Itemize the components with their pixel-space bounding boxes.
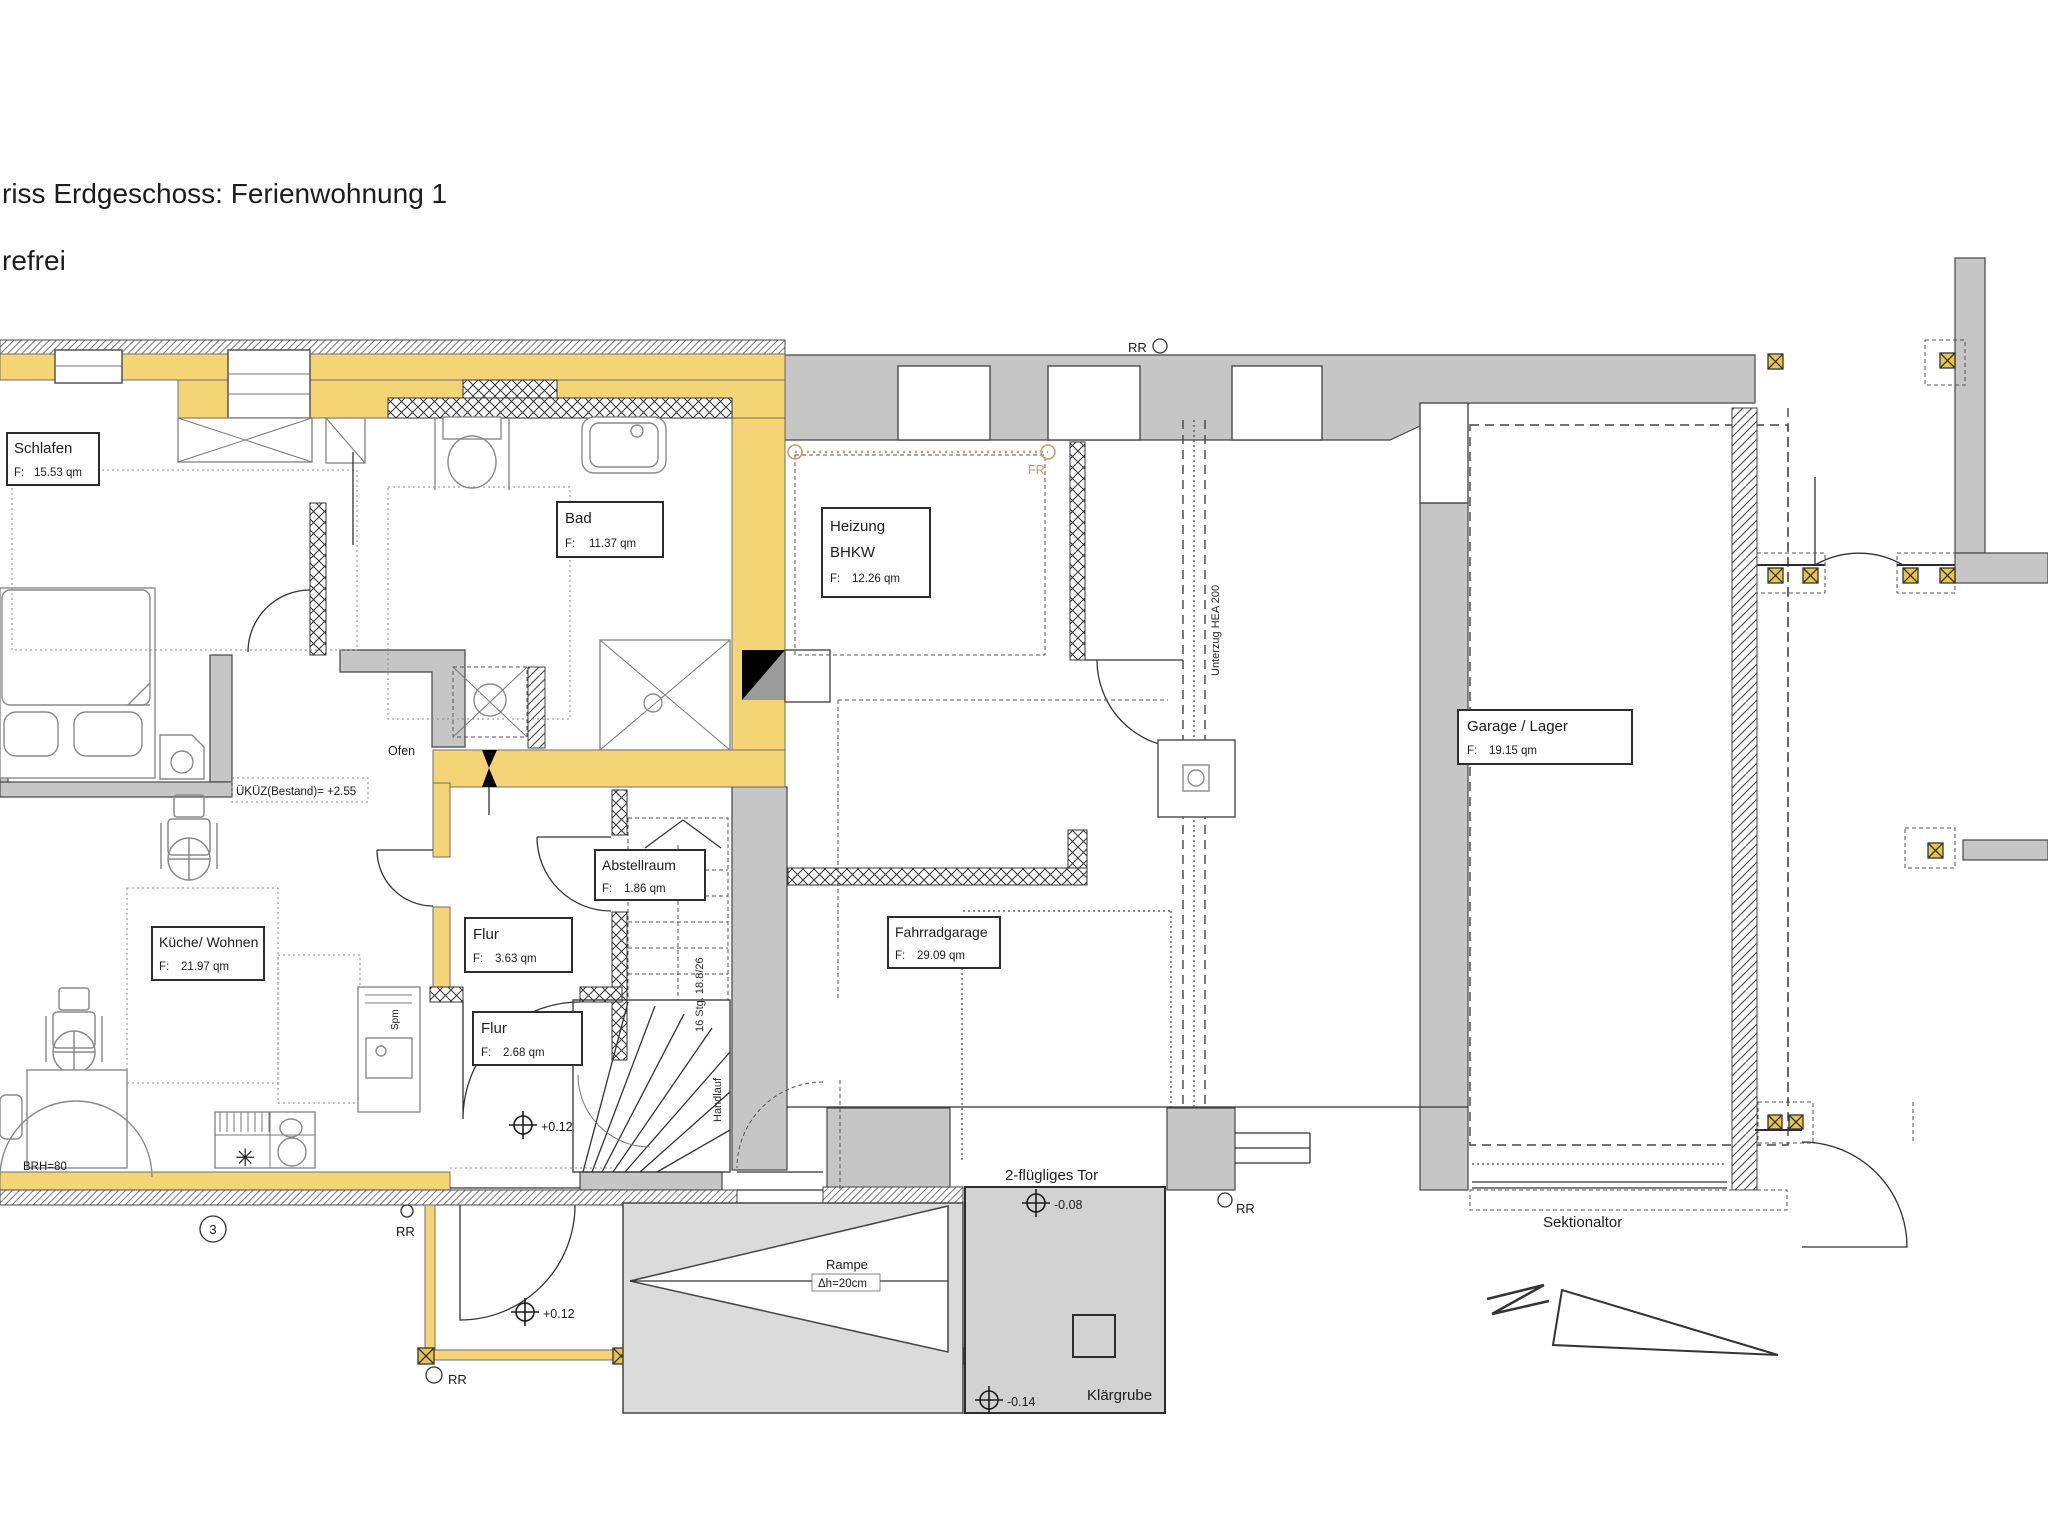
page-title: riss Erdgeschoss: Ferienwohnung 1 (2, 178, 447, 209)
room-name: Abstellraum (602, 857, 676, 873)
floorplan-drawing: riss Erdgeschoss: Ferienwohnung 1 refrei (0, 0, 2048, 1538)
room-label-fahrradgarage: Fahrradgarage F: 29.09 qm (888, 917, 1000, 968)
nightstand (160, 735, 204, 779)
unterzug-label: Unterzug HEA 200 (1210, 585, 1222, 676)
north-arrow-n-glyph (1487, 1285, 1549, 1314)
room-area: 3.63 qm (495, 953, 537, 965)
shower (600, 640, 730, 750)
room-name: Garage / Lager (1467, 718, 1568, 735)
ramp: Rampe Δh=20cm (623, 1203, 963, 1413)
dishwasher-label: Spm (390, 1009, 401, 1030)
stair-count-label: 16 Stg. 18.8/26 (694, 957, 706, 1032)
wheelchair-icon (161, 795, 217, 880)
area-prefix: F: (1467, 745, 1477, 757)
tor-label: 2-flügliges Tor (1005, 1167, 1098, 1184)
area-prefix: F: (473, 953, 483, 965)
area-prefix: F: (481, 1047, 491, 1059)
room-area: 15.53 qm (34, 467, 82, 479)
level-value: -0.08 (1054, 1198, 1083, 1212)
room-label-garage: Garage / Lager F: 19.15 qm (1458, 710, 1632, 764)
ramp-label: Rampe (826, 1257, 868, 1272)
kitchen-counter: ✳ Spm (215, 987, 420, 1172)
level-value: +0.12 (541, 1120, 573, 1134)
room-name-2: BHKW (830, 544, 876, 561)
area-prefix: F: (159, 961, 169, 973)
area-prefix: F: (602, 883, 612, 895)
handlauf-label: Handlauf (712, 1077, 724, 1122)
bed (0, 588, 155, 778)
wheelchair-icon-2 (46, 988, 102, 1073)
room-area: 1.86 qm (624, 883, 666, 895)
fr-label: FR (1028, 463, 1045, 477)
area-prefix: F: (565, 538, 575, 550)
page-subtitle: refrei (2, 245, 66, 276)
room-area: 29.09 qm (917, 950, 965, 962)
sektionaltor-label: Sektionaltor (1543, 1214, 1622, 1231)
room-name: Heizung (830, 518, 885, 535)
cooktop-icon: ✳ (235, 1145, 255, 1172)
room-label-kueche: Küche/ Wohnen F: 21.97 qm (152, 927, 264, 980)
ukuz-note: ÜKÜZ(Bestand)= +2.55 (232, 778, 368, 802)
room-label-flur-2: Flur F: 2.68 qm (473, 1012, 582, 1065)
rr-label: RR (396, 1224, 415, 1239)
chimney-flue (453, 667, 545, 815)
grid-axis-bubble: 3 (200, 1216, 226, 1242)
room-name: Küche/ Wohnen (159, 934, 258, 950)
grid-axis-label: 3 (209, 1222, 216, 1237)
ofen-label: Ofen (388, 744, 415, 758)
north-arrow (1487, 1285, 1778, 1355)
room-name: Bad (565, 510, 592, 527)
unterzug-beam: Unterzug HEA 200 (1158, 420, 1235, 1110)
area-prefix: F: (14, 467, 24, 479)
room-name: Schlafen (14, 440, 72, 457)
ramp-height-label: Δh=20cm (818, 1278, 867, 1290)
area-prefix: F: (895, 950, 905, 962)
klaergrube-label: Klärgrube (1087, 1387, 1152, 1404)
level-value: -0.14 (1007, 1395, 1036, 1409)
east-hatched-wall (1732, 408, 1757, 1190)
floorplan-page: riss Erdgeschoss: Ferienwohnung 1 refrei (0, 0, 2048, 1538)
wardrobe (178, 418, 365, 463)
level-icon (511, 1298, 539, 1326)
rr-label: RR (1236, 1201, 1255, 1216)
rr-label: RR (1128, 340, 1147, 355)
room-area: 11.37 qm (589, 538, 636, 550)
steps (1235, 1133, 1310, 1163)
brh-label: BRH=80 (23, 1161, 67, 1173)
ukuz-label: ÜKÜZ(Bestand)= +2.55 (236, 786, 356, 798)
timber-posts (1755, 353, 1955, 1143)
rr-label: RR (448, 1372, 467, 1387)
support-column (1158, 740, 1235, 817)
level-icon (509, 1111, 537, 1139)
stair-direction-arrow (645, 820, 721, 848)
sink (582, 417, 666, 473)
klaergrube-area: Klärgrube 2-flügliges Tor (965, 1133, 1310, 1413)
room-area: 12.26 qm (852, 573, 900, 585)
room-area: 19.15 qm (1489, 745, 1537, 757)
section-marker (742, 650, 830, 702)
room-label-bad: Bad F: 11.37 qm (557, 502, 663, 557)
room-name: Fahrradgarage (895, 924, 988, 940)
room-area: 2.68 qm (503, 1047, 545, 1059)
room-name: Flur (481, 1020, 507, 1037)
room-label-flur-1: Flur F: 3.63 qm (465, 918, 572, 972)
area-prefix: F: (830, 573, 840, 585)
room-label-heizung: Heizung BHKW F: 12.26 qm (822, 508, 930, 597)
level-value: +0.12 (543, 1307, 575, 1321)
room-label-schlafen: Schlafen F: 15.53 qm (7, 433, 99, 485)
room-label-abstellraum: Abstellraum F: 1.86 qm (595, 850, 705, 900)
garage-area: Sektionaltor (1470, 340, 1965, 1231)
room-name: Flur (473, 926, 499, 943)
toilet (435, 417, 509, 490)
north-wall-windows (898, 366, 1322, 440)
sektionaltor-outline (1470, 1190, 1787, 1210)
post-icon (1768, 353, 1955, 1129)
room-area: 21.97 qm (181, 961, 229, 973)
